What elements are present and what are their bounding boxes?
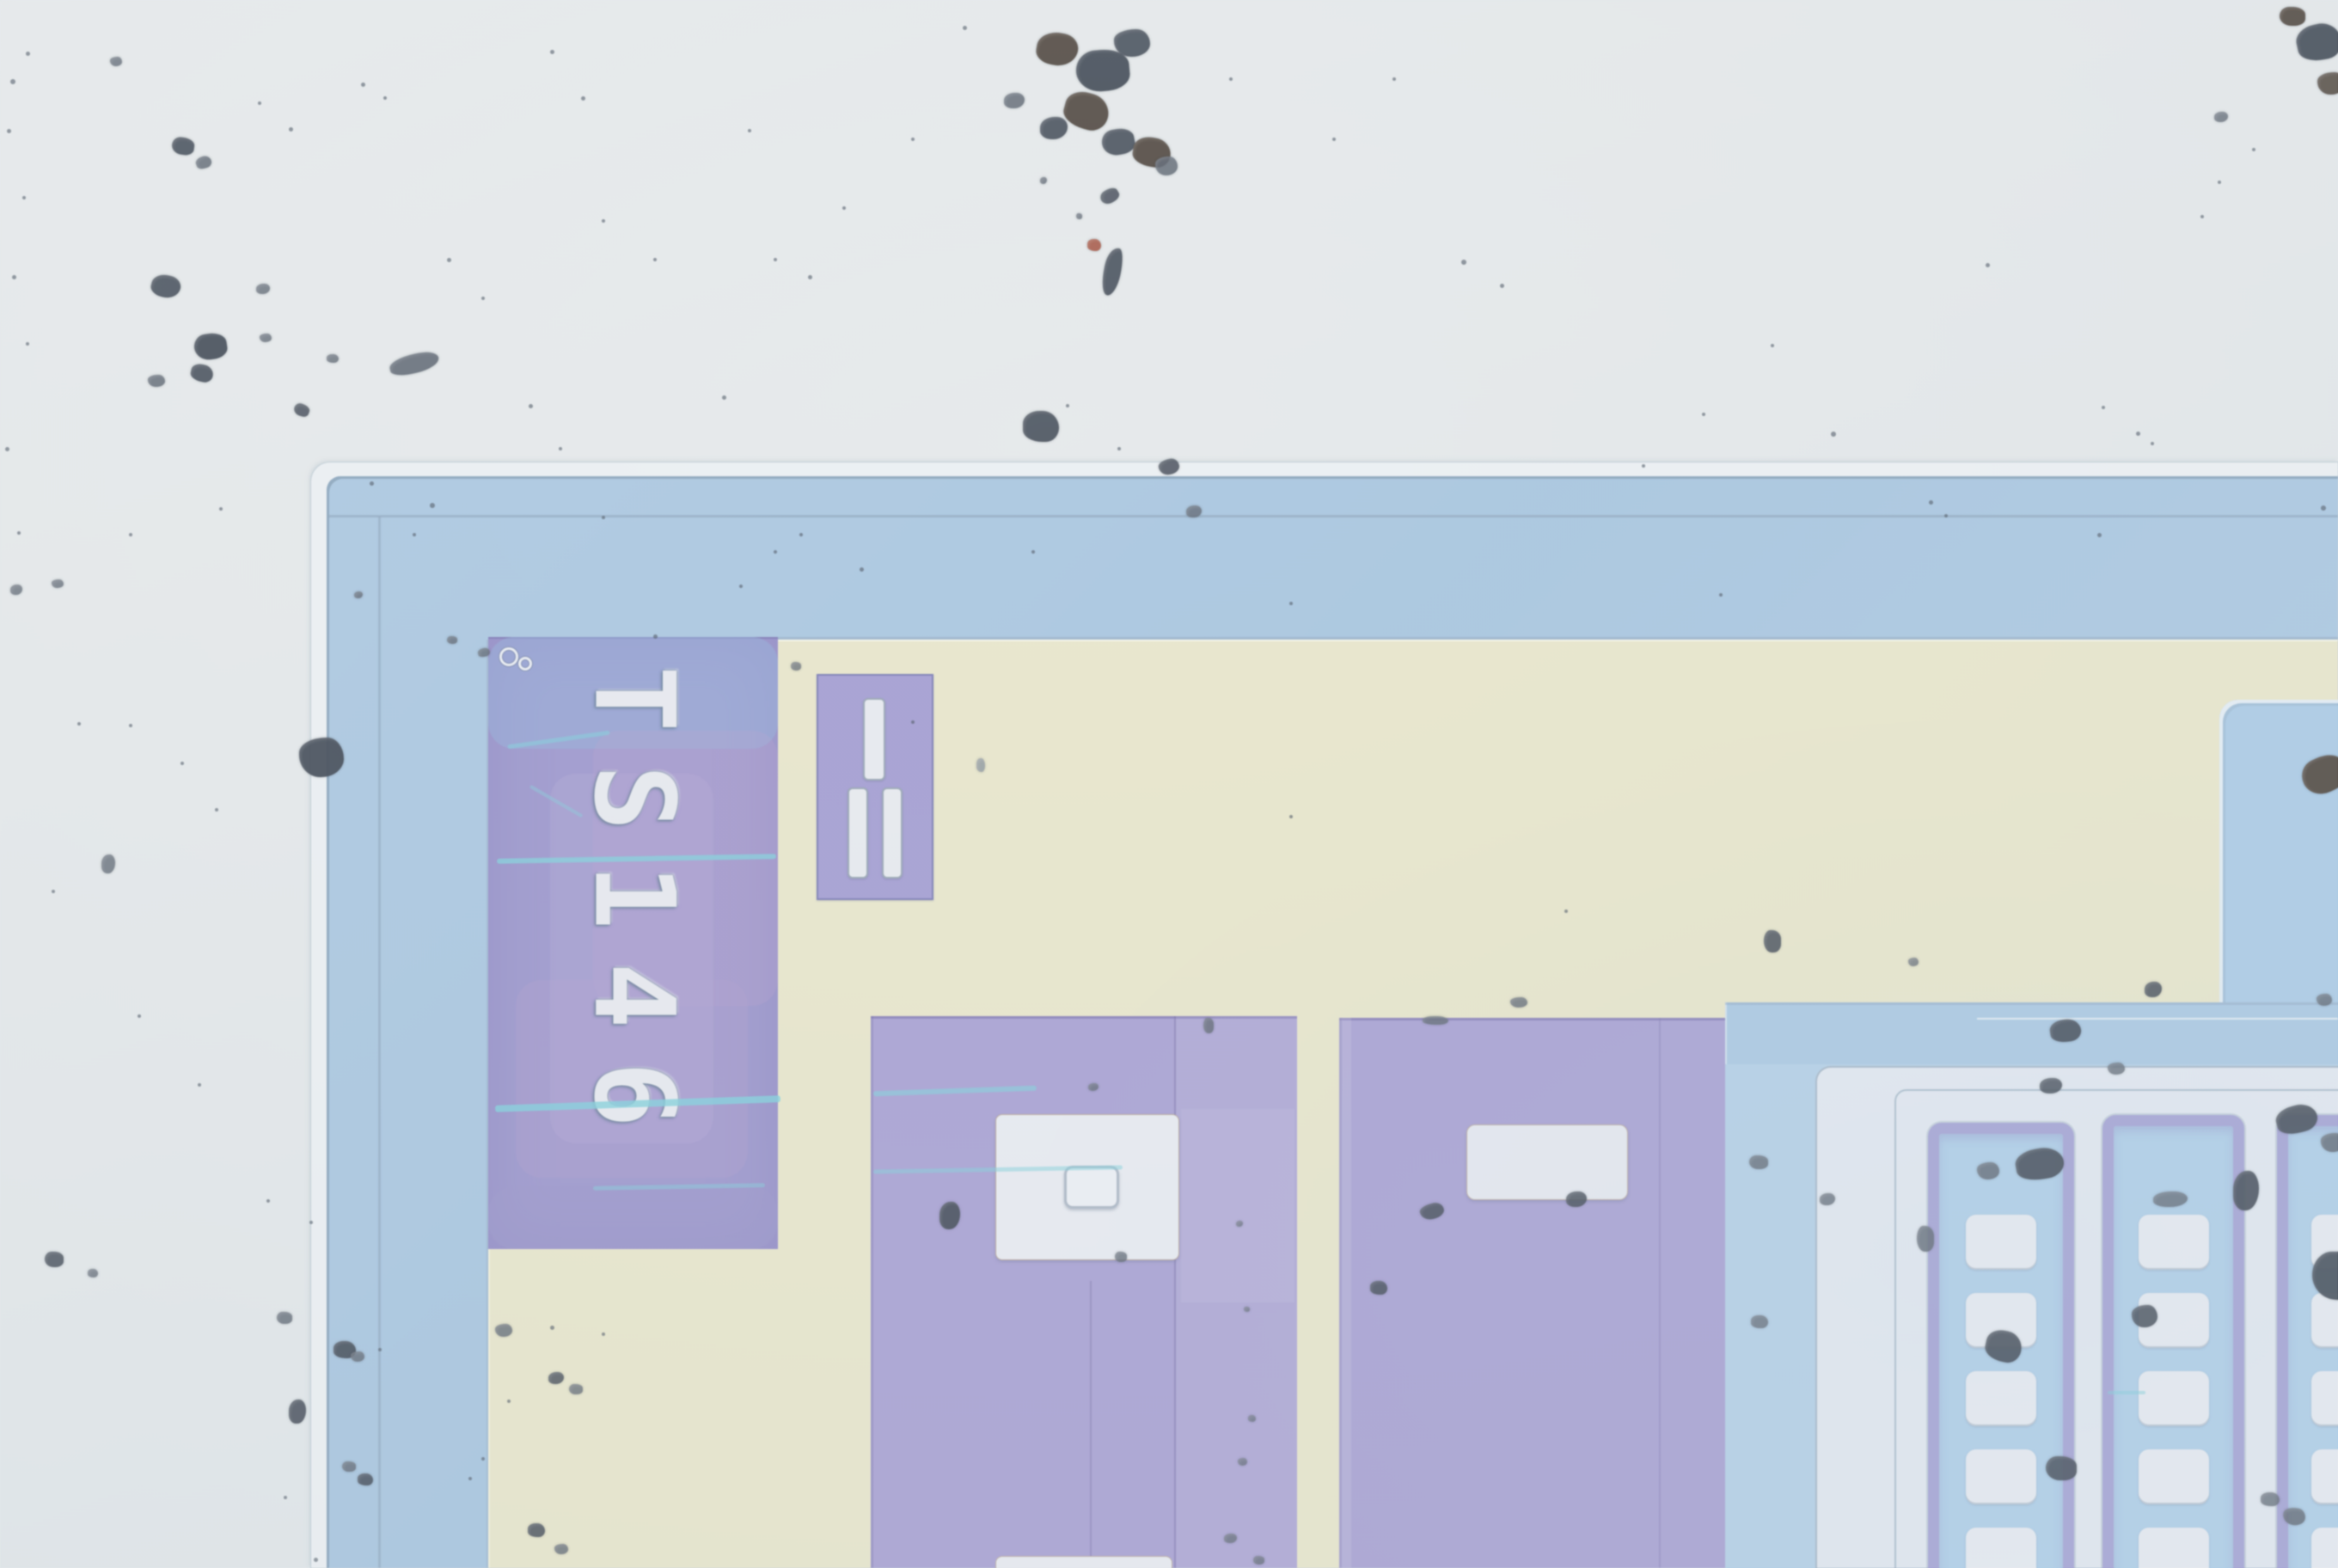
dust-speckle: [10, 79, 15, 84]
dust-speckle: [12, 275, 16, 279]
dust-speckle: [129, 724, 132, 727]
dust-speckle: [507, 1400, 511, 1403]
dust-speckle: [653, 258, 657, 261]
dust-speckle: [1642, 464, 1645, 468]
dust-speckle: [1332, 138, 1336, 141]
dust-speckle: [550, 1326, 554, 1330]
dust-speckle: [2151, 442, 2154, 445]
dust-speckle: [481, 1457, 485, 1461]
dust-speckle: [413, 533, 416, 536]
dust-speckle: [289, 127, 293, 132]
dust-speckle: [774, 550, 777, 554]
dust-speckle: [284, 1496, 287, 1499]
dust-speckle: [129, 533, 132, 536]
dust-speckle: [559, 447, 562, 450]
dust-speckle: [2252, 148, 2255, 151]
dust-speckle: [138, 1014, 141, 1018]
dust-speckle: [481, 297, 485, 300]
dust-speckle: [215, 808, 218, 812]
dust-speckle: [2097, 533, 2102, 537]
dust-speckle: [722, 395, 726, 400]
dust-speckle: [1066, 404, 1069, 407]
dust-speckle: [602, 1332, 605, 1336]
dust-speckle: [1392, 77, 1396, 81]
dust-speckle: [602, 516, 605, 519]
dust-speckle: [799, 533, 803, 536]
dust-speckle: [529, 404, 533, 408]
microscope-photo: TS146: [0, 0, 2338, 1568]
dust-speckle: [383, 96, 387, 100]
dust-speckle: [378, 1348, 382, 1351]
dust-speckle: [77, 722, 81, 726]
dust-speckle: [7, 129, 11, 133]
dust-speckle: [2136, 432, 2140, 436]
dust-speckle: [17, 531, 21, 535]
dust-speckle: [911, 720, 915, 724]
dust-speckle: [5, 447, 9, 451]
photo-content: TS146: [0, 0, 2338, 1568]
dust-speckle: [1500, 284, 1504, 288]
dust-speckle: [1929, 500, 1933, 505]
dust-speckle: [258, 101, 261, 105]
dust-speckle: [808, 275, 812, 279]
dust-speckle: [314, 1558, 318, 1562]
dust-speckle: [468, 1477, 472, 1480]
dust-speckle: [2102, 406, 2105, 409]
dust-speckle: [26, 342, 29, 346]
dust-speckle: [219, 507, 223, 511]
dust-speckle: [361, 83, 365, 87]
dust-speckle: [842, 206, 846, 210]
dust-speckle: [26, 52, 30, 56]
dust-speckle: [860, 567, 864, 572]
dust-speckle: [1702, 413, 1705, 416]
dust-speckle: [2200, 215, 2204, 218]
dust-speckle: [1289, 815, 1293, 818]
dust-speckle: [266, 1199, 270, 1203]
dust-speckle: [52, 890, 55, 893]
dust-speckle: [1461, 260, 1466, 265]
dust-speckle: [1944, 514, 1948, 518]
dust-speckle: [774, 258, 777, 261]
dust-speckle: [963, 26, 967, 30]
dust-speckle: [1719, 593, 1723, 597]
dust-speckle: [739, 585, 743, 588]
dust-speckle: [447, 258, 451, 262]
dust-speckle: [1986, 263, 1990, 267]
dust-speckle: [309, 1221, 313, 1224]
dust-speckle: [1229, 77, 1233, 81]
dust-speckle: [911, 138, 915, 141]
dust-speckle: [748, 129, 751, 132]
dust-speckle: [602, 219, 605, 223]
dust-speckle: [1031, 550, 1035, 554]
dust-speckle: [430, 503, 435, 508]
dust-speckle: [198, 1083, 201, 1087]
dust-speckle: [2321, 505, 2326, 511]
dust-speckle: [581, 96, 585, 101]
dust-speckle: [1771, 344, 1774, 347]
dust-speckle: [1831, 432, 1836, 437]
dust-speckle: [550, 50, 554, 54]
dust-speckle: [1564, 910, 1568, 913]
dust-speckle: [653, 634, 658, 639]
dust-speckles: [0, 0, 2338, 1568]
dust-speckle: [2218, 181, 2221, 184]
dust-speckle: [370, 481, 374, 486]
dust-speckle: [1117, 447, 1121, 450]
dust-speckle: [22, 196, 26, 199]
dust-speckle: [1289, 602, 1293, 605]
dust-speckle: [181, 762, 184, 765]
